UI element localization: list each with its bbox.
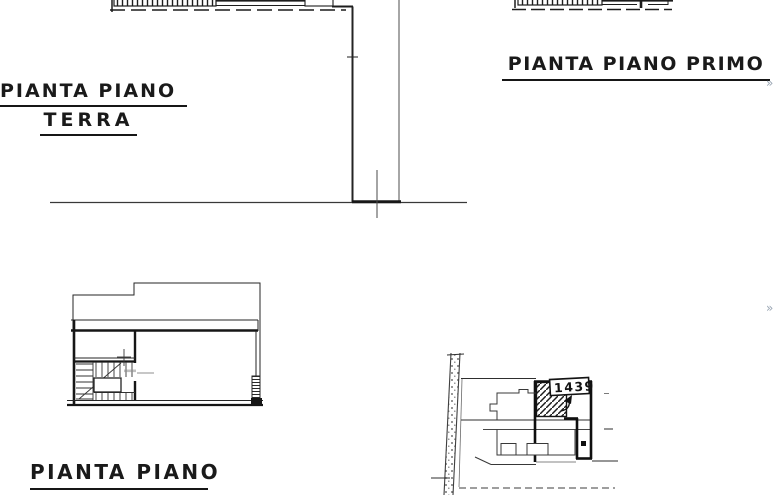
corner-pier	[251, 398, 262, 405]
stair-landing	[94, 378, 121, 392]
hatched-wall-band	[114, 0, 216, 6]
scan-margin-marker-middle: »	[766, 302, 773, 314]
parcel-number-box: 1439	[550, 377, 596, 395]
title-lower-plan: PIANTA PIANO	[30, 460, 208, 490]
parcel-number: 1439	[554, 378, 596, 395]
tiny-annotation	[124, 370, 154, 374]
cadastral-site-plan: 1439	[431, 353, 618, 495]
staircase	[76, 362, 135, 400]
ground-floor-plan-fragment	[110, 0, 358, 57]
lower-floor-plan	[67, 283, 263, 406]
title-ground-floor-line1: PIANTA PIANO	[0, 80, 187, 107]
title-first-floor: PIANTA PIANO PRIMO	[502, 53, 770, 81]
survey-point-dot	[581, 441, 586, 446]
scanned-plan-sheet: 1439 PIANTA PIANO TERRA PIANTA PIANO PRI…	[0, 0, 780, 495]
hatched-wall-band	[518, 0, 602, 5]
title-ground-floor-line2: TERRA	[40, 109, 137, 136]
scan-margin-marker-top: »	[766, 77, 773, 89]
window-opening	[252, 376, 260, 398]
first-floor-plan-fragment	[512, 0, 673, 10]
